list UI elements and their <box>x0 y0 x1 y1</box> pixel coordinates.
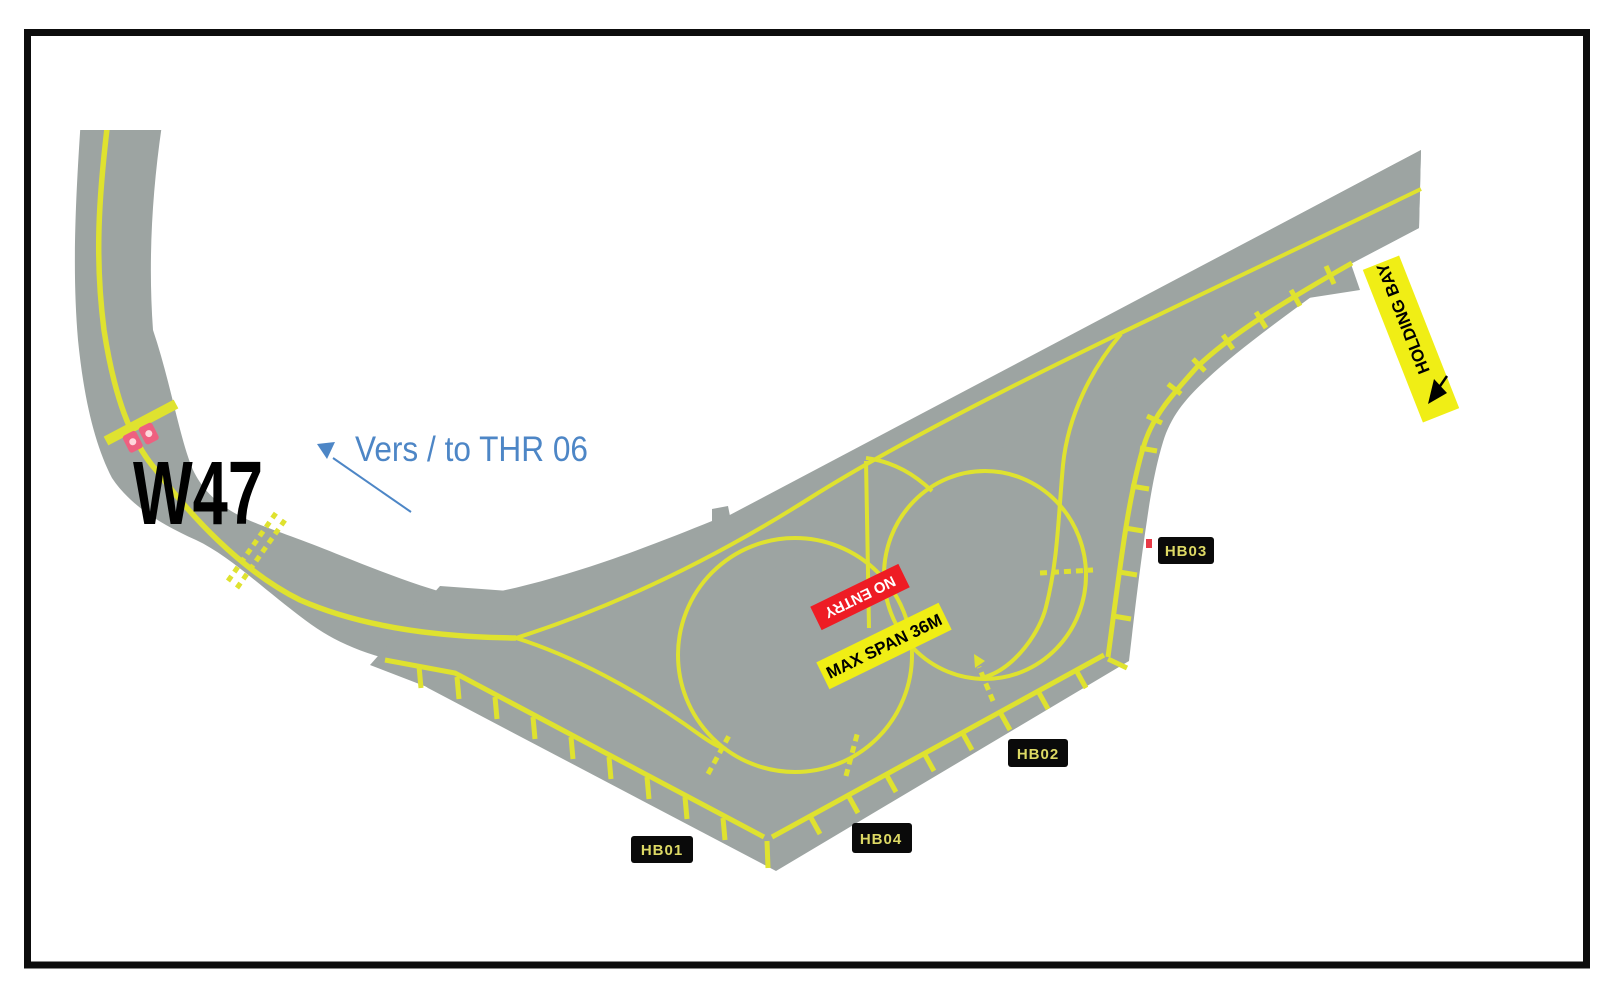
svg-text:HB04: HB04 <box>860 831 902 848</box>
svg-text:HB01: HB01 <box>641 842 683 859</box>
svg-text:HB03: HB03 <box>1165 543 1207 560</box>
svg-text:HB02: HB02 <box>1017 746 1059 763</box>
svg-text:Vers / to THR 06: Vers / to THR 06 <box>355 430 588 469</box>
svg-text:W47: W47 <box>133 444 263 544</box>
